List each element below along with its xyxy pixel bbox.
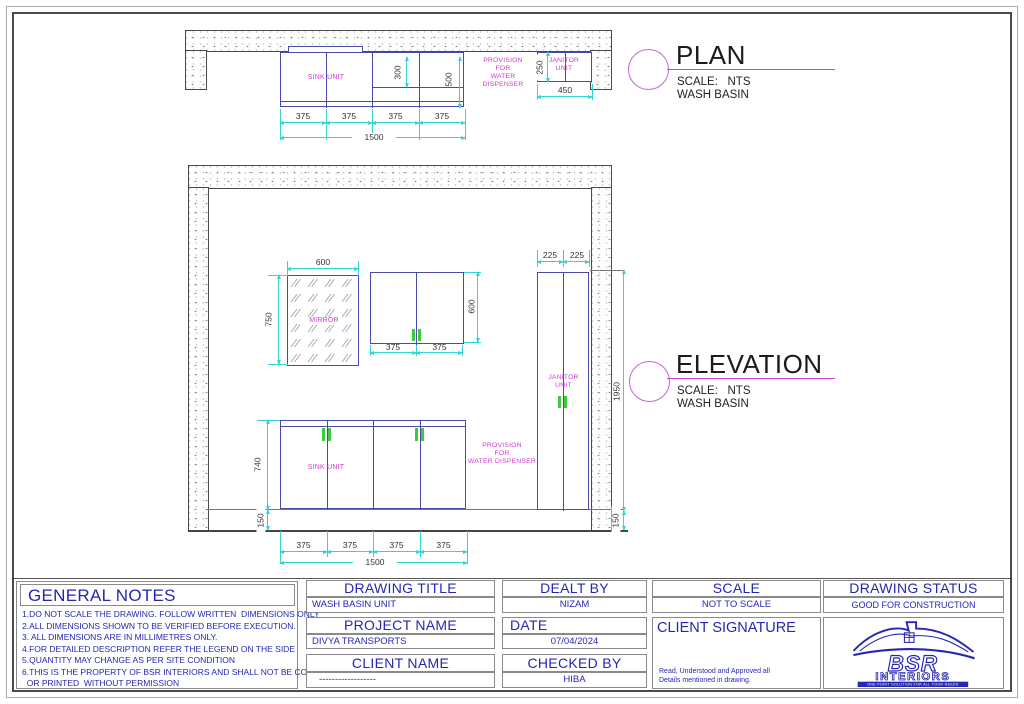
dimension-text: 375: [327, 112, 371, 121]
general-notes-heading: GENERAL NOTES: [20, 584, 295, 606]
dimension-text: 375: [417, 343, 462, 352]
elevation-subtitle: WASH BASIN: [677, 398, 749, 411]
cabinet-handle: [558, 396, 561, 408]
dimension-line: [419, 122, 465, 123]
dimension-line: [280, 551, 327, 552]
elev-extension-gray: [590, 270, 623, 271]
dealt-by-header: DEALT BY: [502, 580, 647, 597]
elev-janitor-divider: [563, 272, 564, 511]
plan-basin-outline: [288, 46, 363, 53]
elevation-scale-text: SCALE: NTS: [677, 385, 751, 398]
drawing-title-value: WASH BASIN UNIT: [306, 597, 495, 613]
checked-by-header: CHECKED BY: [502, 654, 647, 672]
elev-sink-divider: [373, 420, 374, 510]
note-line: 5.QUANTITY MAY CHANGE AS PER SITE CONDIT…: [22, 655, 296, 667]
cabinet-handle: [564, 396, 567, 408]
plan-title: PLAN: [676, 42, 746, 69]
cabinet-handle: [421, 428, 424, 441]
client-signature-cell: CLIENT SIGNATURE Read, Understood and Ap…: [652, 617, 821, 689]
scale-value: NOT TO SCALE: [652, 597, 821, 613]
dimension-text: 225: [563, 251, 591, 260]
extension-line: [467, 531, 468, 564]
plan-sink-divider: [372, 52, 373, 108]
provision-line: WATER DISPENSER: [482, 73, 523, 88]
dimension-text: 1500: [353, 558, 397, 567]
cabinet-handle: [415, 428, 418, 441]
dimension-line: [459, 57, 460, 108]
note-line: 6.THIS IS THE PROPERTY OF BSR INTERIORS …: [22, 667, 296, 679]
plan-scale-text: SCALE: NTS: [677, 76, 751, 89]
plan-wall-top: [185, 30, 612, 52]
dimension-line: [287, 268, 358, 269]
dimension-text: 500: [445, 68, 454, 92]
plan-janitor-label: JANITOR UNIT: [545, 57, 583, 73]
elev-wall-right: [591, 187, 612, 532]
dimension-text: 225: [536, 251, 564, 260]
provision-line: PROVISION: [483, 57, 523, 64]
signature-note-line: Read, Understood and Approved all: [659, 668, 770, 677]
client-signature-label: CLIENT SIGNATURE: [657, 620, 796, 636]
note-line: 3. ALL DIMENSIONS ARE IN MILLIMETRES ONL…: [22, 632, 296, 644]
cabinet-handle: [322, 428, 325, 441]
dimension-line: [267, 510, 268, 530]
provision-line: FOR: [496, 65, 511, 72]
elev-wall-cabinet: [370, 272, 464, 344]
dimension-text: 375: [421, 541, 466, 550]
note-line: OR PRINTED WITHOUT PERMISSION: [22, 678, 296, 690]
project-name-value: DIVYA TRANSPORTS: [306, 634, 495, 649]
dimension-line: [623, 270, 624, 511]
note-line: 2.ALL DIMENSIONS SHOWN TO BE VERIFIED BE…: [22, 621, 296, 633]
client-signature-note: Read, Understood and Approved all Detail…: [659, 668, 770, 685]
drawing-sheet: SINK UNIT PROVISION FOR WATER DISPENSER …: [0, 0, 1024, 704]
note-line: 4.FOR DETAILED DESCRIPTION REFER THE LEG…: [22, 644, 296, 656]
dimension-line: [416, 352, 462, 353]
elev-cabinet-divider: [416, 272, 417, 345]
plan-title-bubble: [628, 49, 669, 90]
provision-line: WATER DISPENSER: [468, 458, 536, 465]
plan-counter-front-rail: [280, 101, 464, 102]
dimension-text: 750: [265, 308, 274, 332]
dimension-text: 375: [281, 112, 325, 121]
dimension-line: [370, 352, 416, 353]
provision-line: FOR: [495, 450, 510, 457]
elev-mirror-label: MIRROR: [300, 317, 348, 325]
dimension-line: [477, 272, 478, 342]
dimension-line: [373, 551, 420, 552]
elevation-title-bubble: [629, 361, 670, 402]
plan-subtitle: WASH BASIN: [677, 89, 749, 102]
elev-wall-top: [188, 165, 612, 189]
elev-wall-left: [188, 187, 209, 532]
signature-note-line: Details mentioned in drawing.: [659, 677, 770, 686]
date-header: DATE: [502, 617, 647, 634]
janitor-line: JANITOR: [548, 374, 578, 381]
dimension-text: 150: [257, 508, 266, 534]
dimension-line: [372, 122, 419, 123]
dimension-text: 375: [373, 112, 418, 121]
dealt-by-value: NIZAM: [502, 597, 647, 613]
janitor-line: JANITOR: [549, 57, 579, 64]
dimension-line: [278, 275, 279, 364]
plan-provision-label: PROVISION FOR WATER DISPENSER: [470, 57, 536, 89]
elev-provision-label: PROVISION FOR WATER DISPENSER: [468, 442, 536, 466]
cabinet-handle: [418, 329, 421, 341]
title-block-top-rule: [14, 578, 1010, 579]
cabinet-handle: [412, 329, 415, 341]
dimension-text: 1500: [352, 133, 396, 142]
plan-wall-left: [185, 50, 207, 90]
project-name-header: PROJECT NAME: [306, 617, 495, 634]
dimension-text: 375: [281, 541, 326, 550]
cabinet-handle: [328, 428, 331, 441]
janitor-line: UNIT: [556, 65, 573, 72]
dimension-line: [280, 122, 326, 123]
provision-line: PROVISION: [482, 442, 522, 449]
plan-sink-divider: [419, 52, 420, 108]
dimension-text: 1950: [613, 376, 622, 408]
plan-sink-unit-label: SINK UNIT: [286, 74, 366, 82]
dimension-line: [267, 420, 268, 510]
scale-header: SCALE: [652, 580, 821, 597]
elev-janitor-label: JANITOR UNIT: [537, 374, 590, 390]
dimension-text: 375: [328, 541, 372, 550]
drawing-status-value: GOOD FOR CONSTRUCTION: [823, 597, 1004, 613]
dimension-line: [547, 52, 548, 82]
elev-sink-unit-label: SINK UNIT: [286, 464, 366, 472]
dimension-text: 250: [536, 55, 545, 81]
dimension-text: 375: [374, 541, 419, 550]
dimension-text: 450: [548, 86, 582, 95]
general-notes-list: 1.DO NOT SCALE THE DRAWING. FOLLOW WRITT…: [22, 609, 296, 690]
dimension-text: 375: [371, 343, 415, 352]
note-line: 1.DO NOT SCALE THE DRAWING. FOLLOW WRITT…: [22, 609, 296, 621]
dimension-line: [537, 96, 592, 97]
dimension-line: [420, 551, 467, 552]
dimension-line: [537, 261, 563, 262]
janitor-line: UNIT: [555, 382, 572, 389]
drawing-title-header: DRAWING TITLE: [306, 580, 495, 597]
date-value: 07/04/2024: [502, 634, 647, 649]
client-name-header: CLIENT NAME: [306, 654, 495, 672]
checked-by-value: HIBA: [502, 672, 647, 688]
bsr-interiors-logo: BSR INTERIORS ONE POINT SOLUTION FOR ALL…: [838, 619, 990, 687]
dimension-text: 375: [420, 112, 464, 121]
dimension-line: [623, 511, 624, 530]
dimension-text: 600: [308, 258, 338, 267]
elev-floor-line: [188, 530, 628, 532]
logo-name-text: INTERIORS: [875, 671, 950, 683]
company-logo-cell: BSR INTERIORS ONE POINT SOLUTION FOR ALL…: [823, 617, 1004, 689]
dimension-line: [406, 57, 407, 87]
dimension-text: 150: [612, 507, 621, 535]
dimension-text: 740: [254, 453, 263, 477]
elevation-title: ELEVATION: [676, 351, 823, 378]
drawing-status-header: DRAWING STATUS: [823, 580, 1004, 597]
plan-wall-right: [590, 50, 612, 90]
dimension-line: [563, 261, 589, 262]
logo-tagline-text: ONE POINT SOLUTION FOR ALL YOUR NEEDS: [867, 683, 959, 687]
general-notes-cell: GENERAL NOTES 1.DO NOT SCALE THE DRAWING…: [16, 581, 298, 689]
dimension-line: [326, 122, 372, 123]
client-name-value: ------------------: [306, 672, 495, 688]
dimension-text: 600: [468, 293, 477, 321]
dimension-line: [327, 551, 373, 552]
dimension-text: 300: [394, 61, 403, 85]
